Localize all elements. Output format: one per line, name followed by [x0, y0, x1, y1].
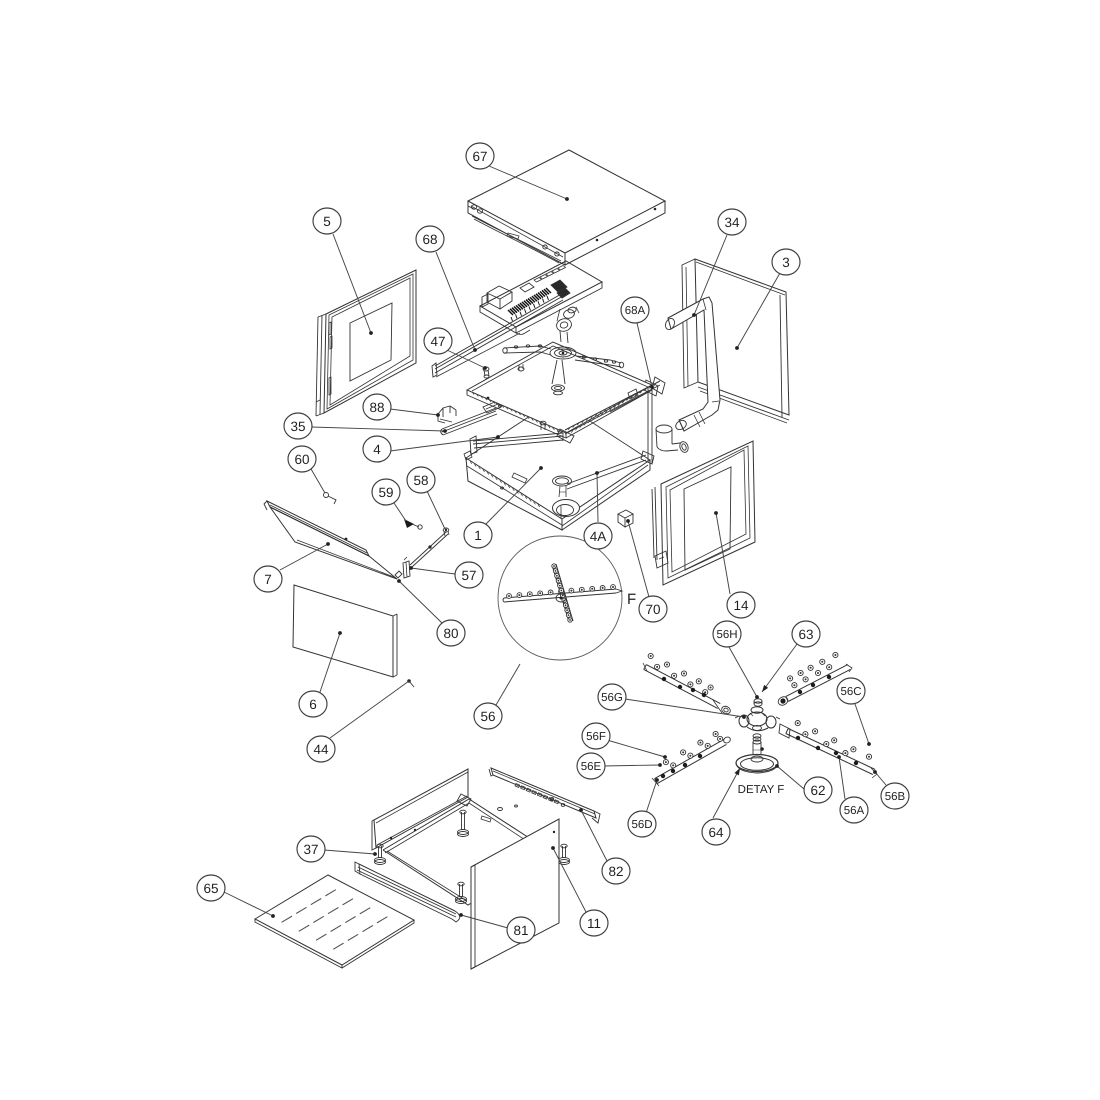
svg-text:70: 70 — [645, 602, 660, 617]
svg-text:4: 4 — [373, 442, 381, 457]
svg-text:5: 5 — [323, 214, 331, 229]
svg-text:DETAY F: DETAY F — [738, 784, 785, 796]
svg-text:34: 34 — [724, 215, 740, 230]
svg-text:F: F — [627, 591, 636, 608]
svg-text:7: 7 — [264, 572, 272, 587]
svg-text:80: 80 — [443, 626, 458, 641]
svg-text:58: 58 — [413, 473, 428, 488]
svg-text:6: 6 — [309, 697, 317, 712]
svg-text:14: 14 — [733, 598, 749, 613]
svg-text:44: 44 — [313, 742, 329, 757]
svg-text:57: 57 — [461, 568, 476, 583]
svg-text:11: 11 — [587, 916, 601, 931]
svg-text:35: 35 — [290, 419, 305, 434]
svg-text:56E: 56E — [581, 761, 602, 773]
svg-text:56C: 56C — [840, 686, 861, 698]
svg-text:56A: 56A — [844, 805, 865, 817]
svg-text:56B: 56B — [885, 791, 906, 803]
svg-text:4A: 4A — [590, 529, 607, 544]
svg-text:82: 82 — [608, 864, 623, 879]
svg-text:68A: 68A — [625, 305, 646, 317]
svg-text:56G: 56G — [601, 692, 623, 704]
svg-text:60: 60 — [294, 452, 309, 467]
svg-text:56: 56 — [480, 709, 495, 724]
svg-text:62: 62 — [810, 783, 825, 798]
svg-text:88: 88 — [369, 400, 384, 415]
svg-text:68: 68 — [422, 232, 437, 247]
svg-text:56F: 56F — [586, 731, 606, 743]
svg-text:3: 3 — [782, 255, 790, 270]
svg-text:65: 65 — [203, 881, 218, 896]
svg-text:37: 37 — [303, 842, 318, 857]
svg-text:81: 81 — [513, 923, 528, 938]
svg-text:1: 1 — [474, 528, 482, 543]
svg-text:67: 67 — [472, 149, 487, 164]
svg-text:56H: 56H — [716, 629, 737, 641]
svg-text:56D: 56D — [631, 819, 652, 831]
svg-text:59: 59 — [378, 485, 393, 500]
svg-text:64: 64 — [708, 825, 724, 840]
svg-text:63: 63 — [798, 627, 813, 642]
svg-text:47: 47 — [430, 334, 445, 349]
